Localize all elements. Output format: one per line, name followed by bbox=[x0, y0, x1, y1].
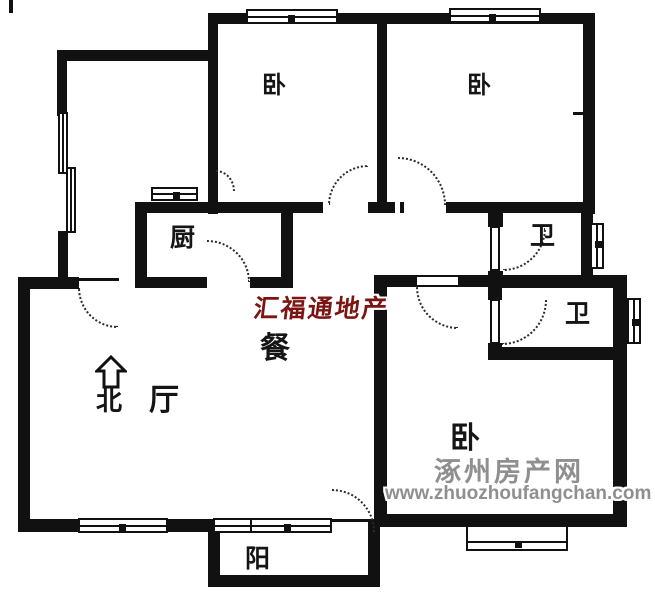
window-divider bbox=[250, 520, 252, 531]
wall-tick-bed2 bbox=[573, 112, 587, 115]
door-arc-topleft-room bbox=[78, 288, 118, 328]
wall-kitchen-bottom-b bbox=[250, 277, 293, 288]
window-topleft-upper bbox=[58, 112, 68, 174]
wall-bath-divider bbox=[488, 275, 627, 288]
wall-balcony-bottom bbox=[208, 575, 380, 587]
window-living bbox=[78, 518, 168, 533]
corner-mark bbox=[9, 0, 13, 13]
wall-kitchen-right bbox=[281, 202, 293, 288]
wall-bath2-left-lower bbox=[488, 343, 502, 360]
wall-bath2-bottom bbox=[488, 347, 627, 360]
compass-north-label: 北 bbox=[96, 388, 122, 414]
wall-topleft-room-left-upper bbox=[57, 50, 67, 116]
bay-window-bedroom-3 bbox=[466, 525, 568, 551]
door-arc-bedroom-2 bbox=[398, 157, 446, 205]
door-lintel-topleft-room bbox=[77, 278, 119, 281]
wall-kitchen-left bbox=[135, 202, 147, 288]
room-label-kitchen: 厨 bbox=[170, 226, 195, 251]
window-balcony bbox=[213, 518, 332, 533]
door-opening-bedroom-3 bbox=[417, 275, 458, 287]
wall-bed3-top-b bbox=[458, 275, 488, 287]
wall-bath1-left-upper bbox=[488, 211, 503, 227]
wall-bed1-bed2-divider bbox=[377, 15, 387, 213]
window-bathroom-1 bbox=[590, 223, 604, 269]
room-label-bathroom-2: 卫 bbox=[565, 302, 590, 327]
room-label-living: 厅 bbox=[149, 386, 179, 416]
wall-corridor-a bbox=[135, 202, 323, 213]
wall-topleft-room-left-lower bbox=[58, 231, 68, 279]
window-bathroom-2 bbox=[627, 298, 641, 344]
arc-fragment bbox=[216, 170, 235, 191]
room-label-bathroom-1: 卫 bbox=[530, 224, 555, 249]
door-arc-bathroom-2 bbox=[502, 300, 547, 345]
wall-corridor-b bbox=[368, 202, 395, 213]
wall-bed3-top-a bbox=[374, 275, 417, 287]
window-marker bbox=[489, 14, 496, 21]
room-label-dining: 餐 bbox=[260, 334, 290, 364]
wall-living-left bbox=[18, 277, 30, 532]
window-marker bbox=[119, 524, 126, 531]
door-arc-bedroom-1 bbox=[328, 165, 368, 205]
window-topleft-lower bbox=[66, 167, 76, 233]
door-arc-bedroom-3 bbox=[416, 287, 458, 329]
window-marker bbox=[284, 524, 291, 531]
wall-corridor-c bbox=[446, 202, 595, 213]
room-label-balcony: 阳 bbox=[245, 547, 270, 572]
watermark-agency: 汇福通地产 bbox=[252, 289, 391, 325]
window-marker bbox=[288, 15, 295, 22]
wall-kitchen-bottom-a bbox=[135, 277, 207, 288]
door-leaf-bathroom-2 bbox=[490, 299, 500, 344]
wall-topleft-room-top bbox=[57, 50, 217, 61]
window-marker bbox=[515, 541, 522, 548]
wall-bath1-left-lower bbox=[488, 271, 503, 288]
door-leaf-bathroom-1 bbox=[490, 226, 500, 271]
watermark-site-url: www.zhuozhoufangchan.com bbox=[385, 483, 651, 505]
window-bedroom-1 bbox=[246, 9, 338, 24]
floor-plan: 卧 卧 卧 厨 卫 卫 餐 厅 阳 北 汇福通地产 涿州房产网 www.zhuo… bbox=[0, 0, 655, 600]
room-label-bedroom-1: 卧 bbox=[262, 74, 286, 98]
window-marker bbox=[632, 319, 639, 326]
room-label-bedroom-2: 卧 bbox=[467, 74, 491, 98]
window-bedroom-2 bbox=[449, 8, 541, 23]
door-arc-balcony bbox=[332, 489, 375, 532]
north-arrow-icon bbox=[95, 355, 127, 389]
window-marker bbox=[173, 192, 180, 199]
wall-living-bottom-left bbox=[18, 519, 79, 532]
door-arc-kitchen bbox=[207, 240, 250, 282]
window-kitchen bbox=[151, 187, 198, 201]
window-marker bbox=[595, 241, 602, 248]
